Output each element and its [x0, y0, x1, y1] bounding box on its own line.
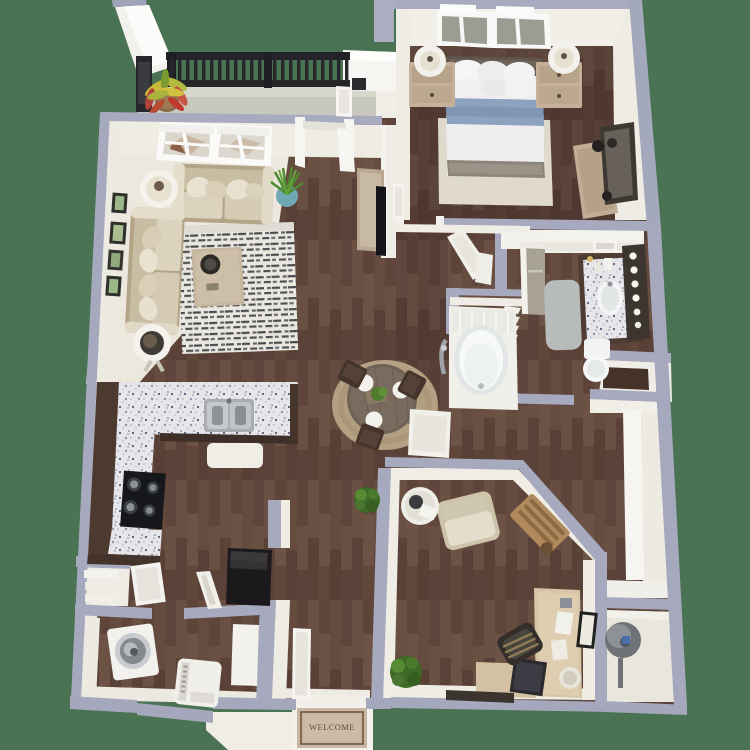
svg-text:WELCOME: WELCOME: [309, 722, 355, 732]
